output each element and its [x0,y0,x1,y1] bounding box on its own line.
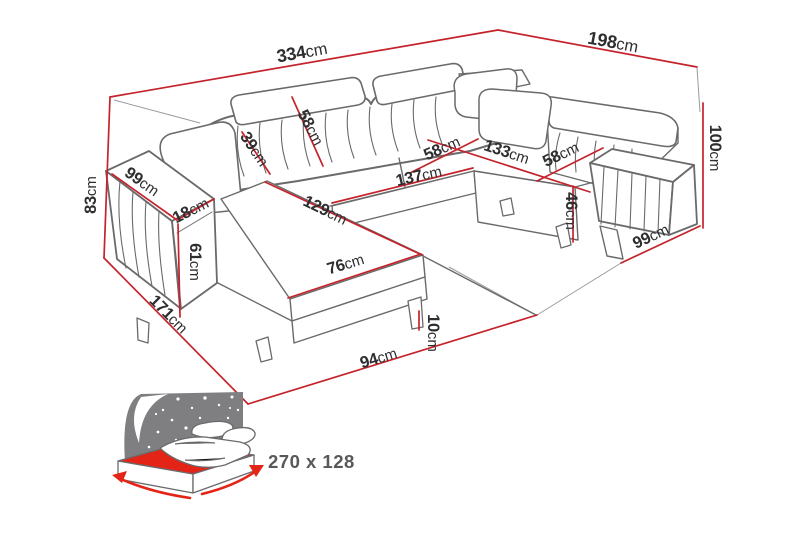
sofa-dimension-diagram: 334cm 198cm 100cm 83cm 99cm 18cm 61cm 17… [0,0,800,533]
right-armrest-foot [600,226,623,259]
dim-label-94: 94cm [358,344,399,372]
diagram-canvas: 334cm 198cm 100cm 83cm 99cm 18cm 61cm 17… [0,0,800,533]
base-edge-right [537,263,621,315]
leg-bench [500,198,514,216]
sleeping-area-label: 270 x 128 [268,451,355,472]
sofa-bed-icon: 270 x 128 [112,392,355,498]
dim-label-83: 83cm [82,176,100,214]
dim-label-46: 46cm [562,192,580,230]
dim-label-61: 61cm [186,243,204,281]
dim-label-100: 100cm [706,125,724,172]
dim-label-334: 334cm [275,38,329,67]
leg-chaise-front [408,297,423,329]
leg-left-base [137,318,149,343]
leg-chaise-left [256,337,272,362]
chaise-base-left-edge [216,282,292,321]
dim-label-198: 198cm [586,28,640,57]
dim-label-10: 10cm [424,314,442,352]
floor-inner-left-edge [423,256,536,315]
wall-edge-left [114,100,200,123]
wall-edge-right [697,68,700,112]
